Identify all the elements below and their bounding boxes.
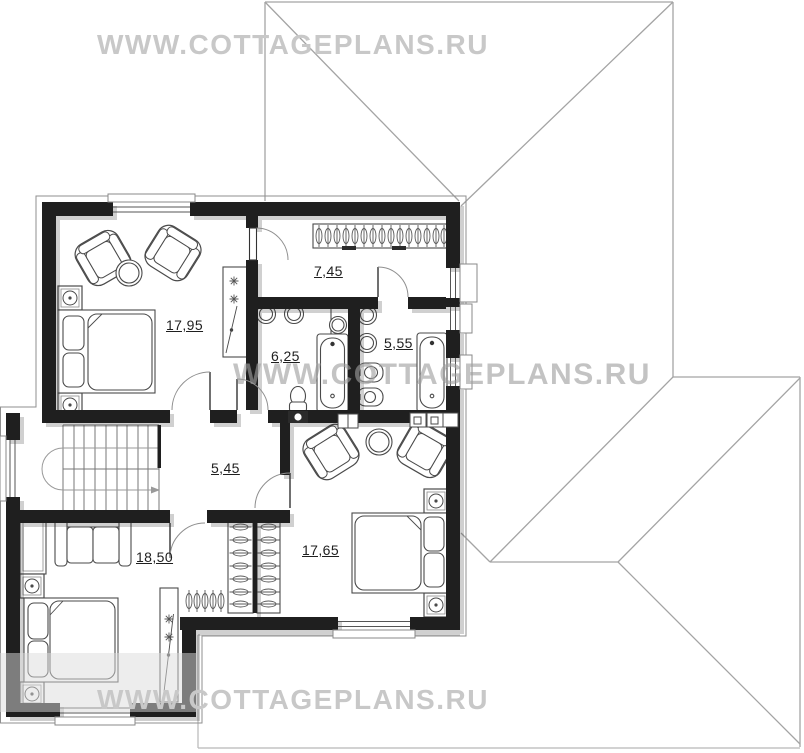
side-table bbox=[366, 429, 392, 455]
toilet-tank bbox=[288, 411, 308, 423]
sofa bbox=[55, 516, 131, 566]
room-area-label-bedroom-bottom-right: 17,65 bbox=[302, 542, 339, 558]
corner-basin bbox=[330, 317, 347, 334]
watermark-bottom: WWW.COTTAGEPLANS.RU bbox=[97, 684, 489, 716]
room-area-label-hall: 5,45 bbox=[211, 460, 240, 476]
room-area-label-dressing-room: 7,45 bbox=[314, 263, 343, 279]
nightstand-lamp bbox=[424, 593, 448, 617]
room-area-label-bedroom-top-left: 17,95 bbox=[166, 317, 203, 333]
watermark-top: WWW.COTTAGEPLANS.RU bbox=[97, 29, 489, 61]
room-area-label-bedroom-bottom-left: 18,50 bbox=[136, 549, 173, 565]
nightstand-lamp bbox=[20, 574, 44, 598]
room-area-label-bathroom-right: 5,55 bbox=[384, 335, 413, 351]
closet-hangers bbox=[257, 517, 280, 613]
room-area-label-bathroom-left: 6,25 bbox=[271, 348, 300, 364]
wardrobe-cabinet bbox=[223, 267, 250, 357]
floor-plan-page: WWW.COTTAGEPLANS.RU WWW.COTTAGEPLANS.RU … bbox=[0, 0, 804, 753]
closet-hangers bbox=[228, 517, 253, 613]
wardrobe-hangers bbox=[313, 224, 450, 250]
nightstand-lamp bbox=[58, 286, 82, 310]
bed bbox=[58, 310, 155, 393]
nightstand-lamp bbox=[424, 489, 448, 513]
bed bbox=[352, 513, 448, 593]
side-table bbox=[116, 260, 142, 286]
desk bbox=[20, 518, 46, 574]
stair-rail-wall bbox=[158, 425, 162, 468]
